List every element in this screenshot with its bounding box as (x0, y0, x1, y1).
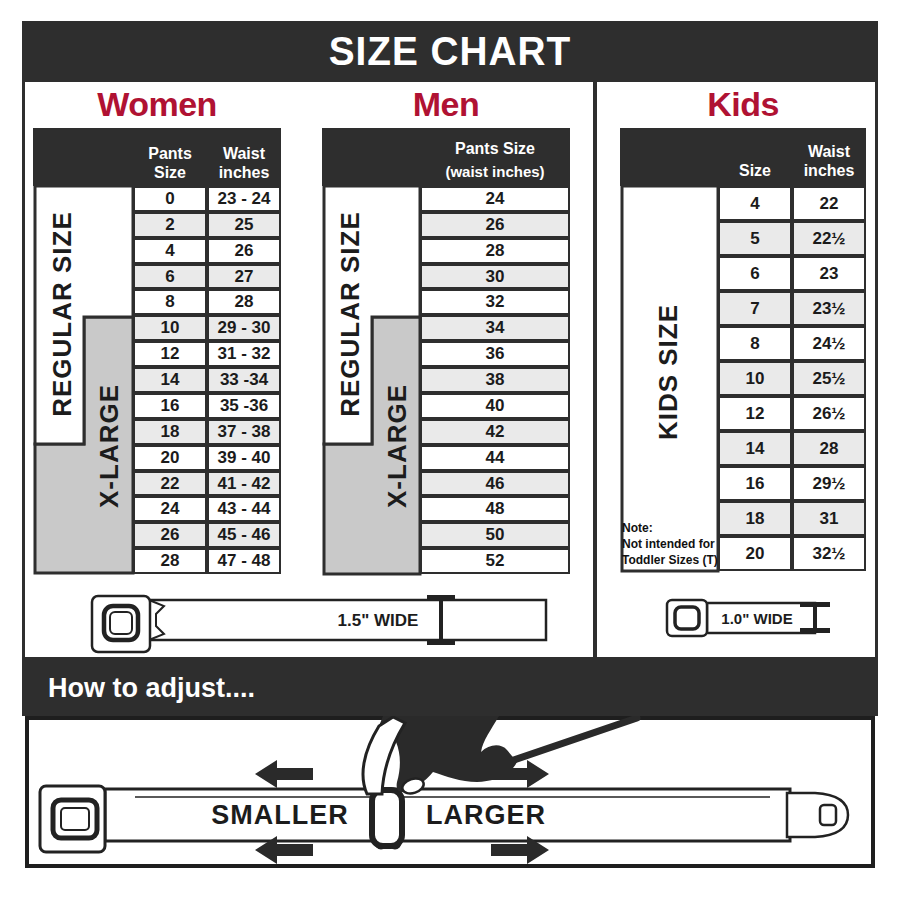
size-chart-infographic: SIZE CHART Women Men Kids Pants Size Wai… (0, 0, 900, 900)
table-cell: 28 (420, 238, 570, 264)
table-cell: 16 (133, 393, 207, 419)
table-cell: 25½ (792, 361, 866, 396)
table-cell: 16 (718, 466, 792, 501)
table-cell: 28 (792, 431, 866, 466)
table-cell: 37 - 38 (207, 419, 281, 445)
table-cell: 26 (420, 212, 570, 238)
table-cell: 29 - 30 (207, 315, 281, 341)
table-cell: 5 (718, 221, 792, 256)
table-cell: 34 (420, 315, 570, 341)
table-cell: 42 (420, 419, 570, 445)
table-cell: 25 (207, 212, 281, 238)
table-cell: 45 - 46 (207, 522, 281, 548)
table-cell: 48 (420, 496, 570, 522)
table-cell: 44 (420, 445, 570, 471)
table-cell: 20 (133, 445, 207, 471)
table-cell: 32½ (792, 536, 866, 571)
table-cell: 33 -34 (207, 367, 281, 393)
table-cell: 23 - 24 (207, 186, 281, 212)
table-cell: 24 (133, 496, 207, 522)
table-cell: 35 -36 (207, 393, 281, 419)
how-to-adjust-heading: How to adjust.... (22, 673, 255, 704)
table-cell: 10 (718, 361, 792, 396)
table-cell: 14 (718, 431, 792, 466)
table-cell: 6 (718, 256, 792, 291)
table-cell: 0 (133, 186, 207, 212)
table-cell: 23½ (792, 291, 866, 326)
table-cell: 38 (420, 367, 570, 393)
table-cell: 6 (133, 264, 207, 289)
table-cell: 52 (420, 548, 570, 574)
table-cell: 30 (420, 264, 570, 289)
table-cell: 31 - 32 (207, 341, 281, 367)
table-cell: 4 (133, 238, 207, 264)
table-cell: 4 (718, 186, 792, 221)
table-cell: 47 - 48 (207, 548, 281, 574)
table-cell: 26 (207, 238, 281, 264)
table-cell: 10 (133, 315, 207, 341)
table-cell: 8 (133, 289, 207, 315)
table-cell: 23 (792, 256, 866, 291)
table-cell: 39 - 40 (207, 445, 281, 471)
table-cell: 32 (420, 289, 570, 315)
table-cell: 27 (207, 264, 281, 289)
table-cell: 22½ (792, 221, 866, 256)
table-cell: 41 - 42 (207, 471, 281, 496)
table-cell: 12 (718, 396, 792, 431)
table-cell: 18 (718, 501, 792, 536)
table-cell: 8 (718, 326, 792, 361)
table-cell: 24½ (792, 326, 866, 361)
table-cell: 24 (420, 186, 570, 212)
table-cell: 14 (133, 367, 207, 393)
table-cell: 36 (420, 341, 570, 367)
table-cell: 46 (420, 471, 570, 496)
table-cell: 26 (133, 522, 207, 548)
table-cell: 40 (420, 393, 570, 419)
table-cell: 28 (207, 289, 281, 315)
adjust-diagram-panel (25, 716, 875, 868)
how-to-adjust-banner: How to adjust.... (22, 660, 878, 716)
table-cell: 18 (133, 419, 207, 445)
table-cell: 22 (792, 186, 866, 221)
table-cell: 20 (718, 536, 792, 571)
table-cell: 12 (133, 341, 207, 367)
table-cell: 22 (133, 471, 207, 496)
table-cell: 7 (718, 291, 792, 326)
table-cell: 26½ (792, 396, 866, 431)
table-cell: 50 (420, 522, 570, 548)
table-cell: 31 (792, 501, 866, 536)
table-cell: 43 - 44 (207, 496, 281, 522)
table-cell: 29½ (792, 466, 866, 501)
table-cell: 2 (133, 212, 207, 238)
table-cell: 28 (133, 548, 207, 574)
